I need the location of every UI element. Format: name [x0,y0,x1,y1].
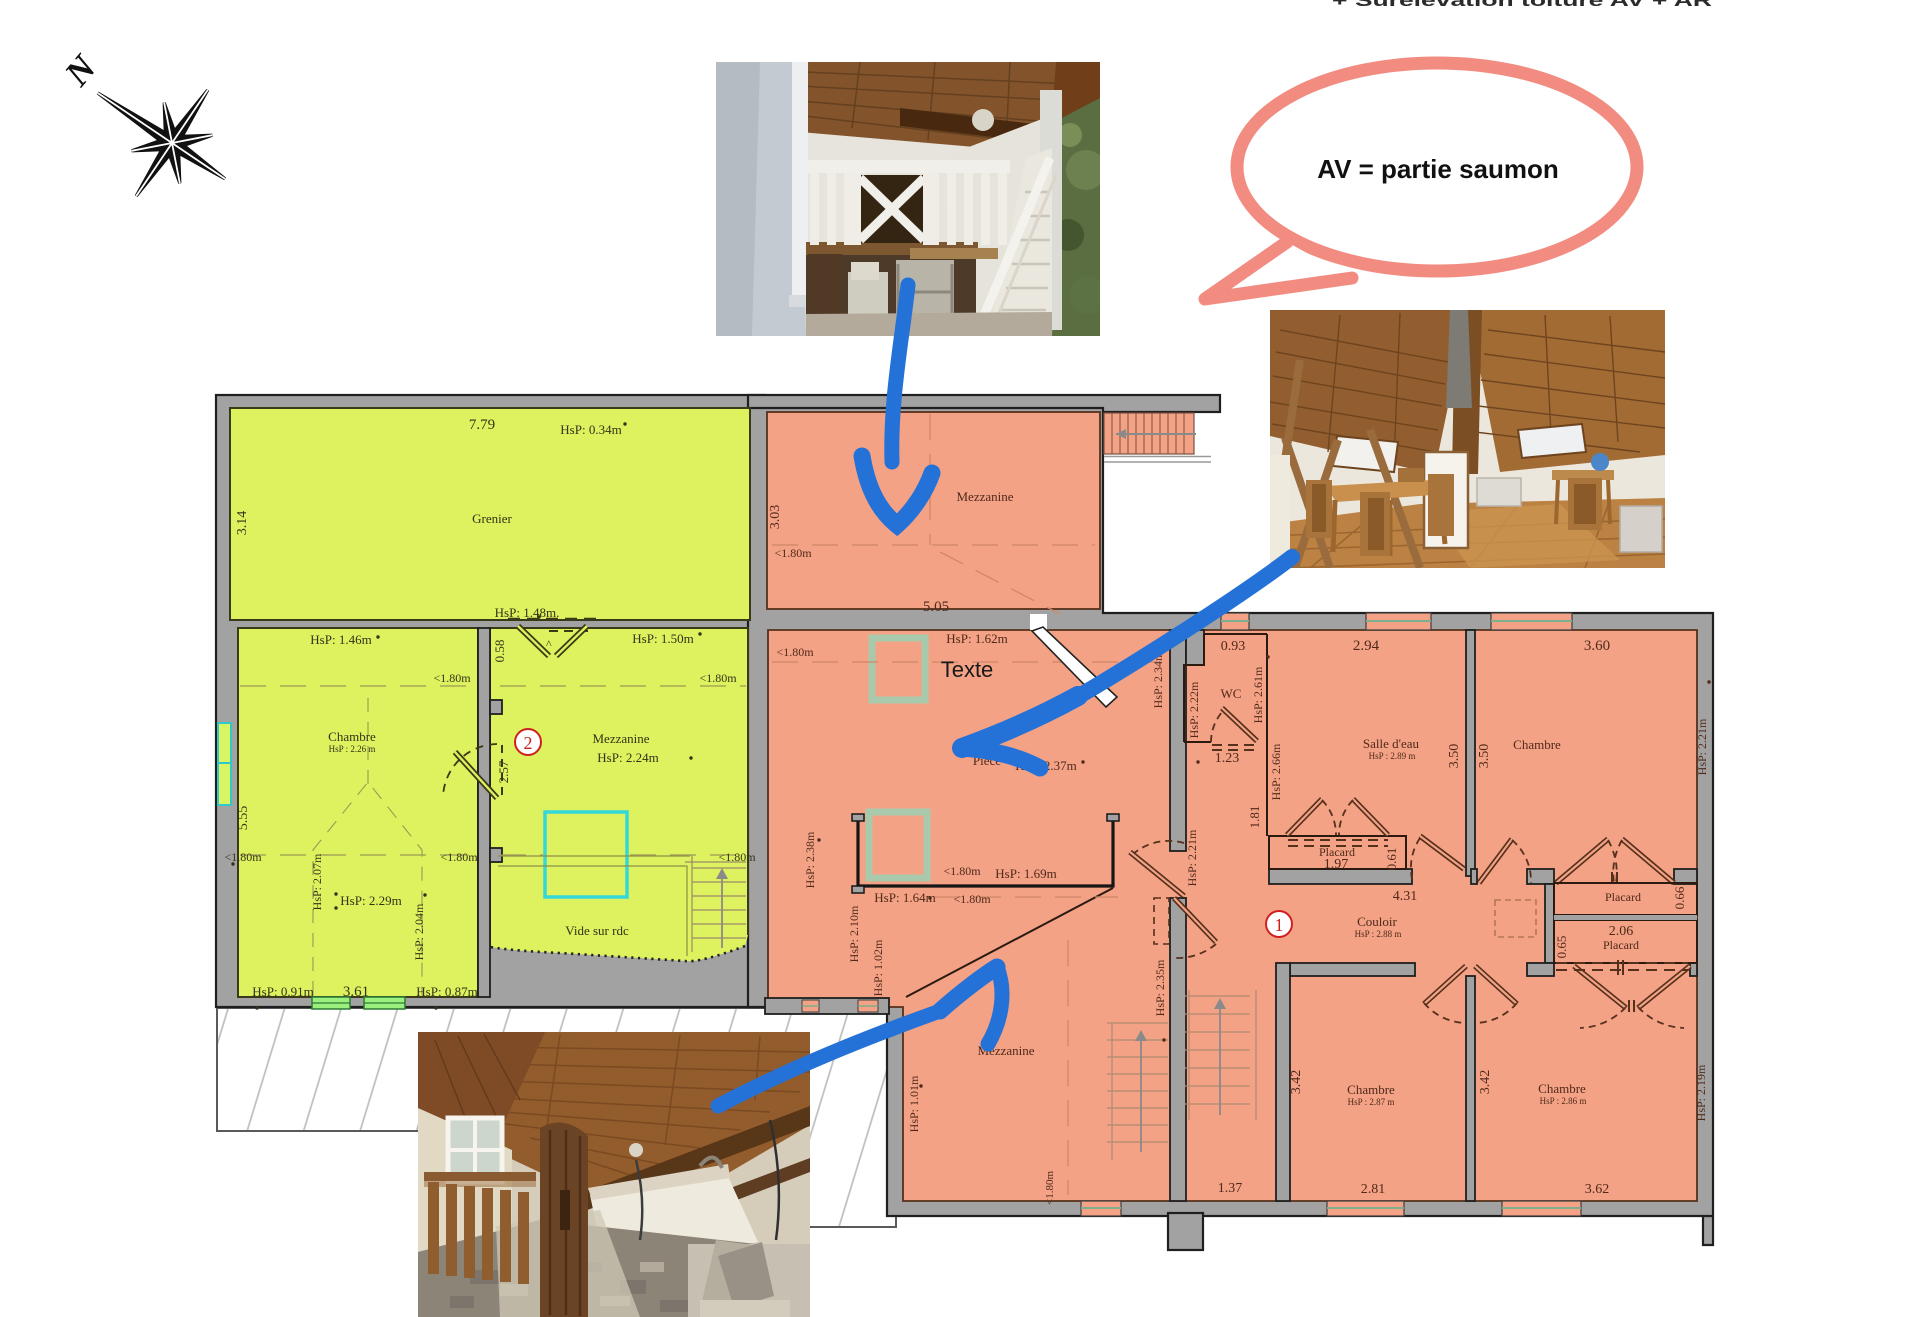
svg-text:3.50: 3.50 [1477,744,1492,769]
svg-text:0.61: 0.61 [1384,848,1399,871]
svg-text:<1.80m: <1.80m [943,864,981,878]
svg-text:7.79: 7.79 [469,417,495,433]
svg-text:<1.80m: <1.80m [776,645,814,659]
svg-text:1.23: 1.23 [1215,751,1240,766]
svg-text:N: N [56,47,105,94]
svg-text:HsP: 1.48m.: HsP: 1.48m. [495,605,560,620]
svg-text:2: 2 [524,733,533,753]
svg-text:2.94: 2.94 [1353,638,1380,654]
svg-text:<1.80m: <1.80m [718,850,756,864]
svg-text:HsP: 2.21m: HsP: 2.21m [1185,829,1199,886]
svg-text:Placard: Placard [1603,938,1639,952]
svg-text:HsP: 1.02m: HsP: 1.02m [871,939,885,996]
svg-text:<1.80m: <1.80m [953,892,991,906]
svg-text:HsP: 0.87m: HsP: 0.87m [416,984,477,999]
svg-text:<1.80m: <1.80m [699,671,737,685]
svg-text:HsP: 2.19m: HsP: 2.19m [1694,1064,1708,1121]
svg-text:HsP: 1.64m: HsP: 1.64m [874,890,935,905]
svg-text:4.31: 4.31 [1393,889,1418,904]
svg-text:HsP: 2.21m: HsP: 2.21m [1695,718,1709,775]
svg-text:Couloir: Couloir [1357,914,1397,929]
svg-text:Grenier: Grenier [472,511,512,526]
svg-text:3.03: 3.03 [768,505,783,530]
svg-text:HsP: 1.69m: HsP: 1.69m [995,866,1056,881]
svg-text:0.58: 0.58 [492,640,507,663]
svg-text:3.50: 3.50 [1447,744,1462,769]
svg-text:HsP : 2.26 m: HsP : 2.26 m [329,744,376,754]
svg-text:HsP: 2.24m: HsP: 2.24m [597,750,658,765]
svg-text:3.60: 3.60 [1584,638,1610,654]
svg-text:<1.80m: <1.80m [1044,1171,1056,1205]
svg-text:0.66: 0.66 [1672,886,1687,909]
svg-text:Salle d'eau: Salle d'eau [1363,736,1420,751]
svg-text:Mezzanine: Mezzanine [592,731,649,746]
svg-text:5.55: 5.55 [236,806,251,831]
svg-text:HsP : 2.89 m: HsP : 2.89 m [1369,751,1416,761]
svg-text:HsP: 1.50m: HsP: 1.50m [632,631,693,646]
svg-text:HsP : 2.86 m: HsP : 2.86 m [1540,1096,1587,1106]
svg-text:Texte: Texte [941,657,994,682]
svg-text:Chambre: Chambre [1513,737,1561,752]
svg-text:3.42: 3.42 [1478,1070,1493,1095]
svg-text:HsP: 2.07m: HsP: 2.07m [310,853,324,910]
svg-text:WC: WC [1221,686,1242,701]
svg-text:<1.80m: <1.80m [224,850,262,864]
svg-text:Vide sur rdc: Vide sur rdc [565,923,629,938]
svg-text:5.05: 5.05 [923,599,949,615]
svg-text:0.93: 0.93 [1221,639,1246,654]
svg-text:HsP: 2.38m: HsP: 2.38m [803,831,817,888]
svg-text:<1.80m: <1.80m [774,546,812,560]
svg-text:HsP: 1.46m: HsP: 1.46m [310,632,371,647]
svg-text:HsP: 2.61m: HsP: 2.61m [1251,666,1265,723]
svg-text:3.61: 3.61 [343,984,369,1000]
svg-text:AV = partie saumon: AV = partie saumon [1317,154,1559,184]
svg-text:HsP: 0.34m: HsP: 0.34m [560,422,621,437]
svg-text:2.57: 2.57 [496,760,511,783]
svg-text:HsP: 1.62m: HsP: 1.62m [946,631,1007,646]
svg-text:2.81: 2.81 [1361,1182,1386,1197]
svg-text:^: ^ [546,637,552,651]
svg-text:HsP: 2.22m: HsP: 2.22m [1187,681,1201,738]
svg-text:HsP: 1.01m: HsP: 1.01m [907,1075,921,1132]
svg-text:HsP: 2.04m: HsP: 2.04m [412,903,426,960]
svg-text:3.62: 3.62 [1585,1182,1610,1197]
svg-text:3.14: 3.14 [235,511,250,536]
svg-text:0.65: 0.65 [1554,936,1569,959]
svg-text:HsP: 2.66m: HsP: 2.66m [1269,743,1283,800]
svg-text:1.37: 1.37 [1218,1181,1243,1196]
svg-text:HsP: 0.91m: HsP: 0.91m [252,984,313,999]
svg-text:1.81: 1.81 [1247,806,1262,829]
svg-text:HsP: 2.35m: HsP: 2.35m [1153,959,1167,1016]
svg-text:HsP : 2.88 m: HsP : 2.88 m [1355,929,1402,939]
svg-text:Placard: Placard [1605,890,1641,904]
svg-text:HsP : 2.87 m: HsP : 2.87 m [1348,1097,1395,1107]
svg-text:Chambre: Chambre [1347,1082,1395,1097]
svg-text:Mezzanine: Mezzanine [956,489,1013,504]
svg-text:Chambre: Chambre [328,729,376,744]
svg-text:2.06: 2.06 [1609,924,1634,939]
svg-text:3.42: 3.42 [1289,1070,1304,1095]
svg-text:<1.80m: <1.80m [433,671,471,685]
svg-text:+ Surelevation toiture AV + AR: + Surelevation toiture AV + AR [1332,0,1712,10]
svg-text:1: 1 [1275,915,1284,935]
svg-text:HsP: 2.10m: HsP: 2.10m [847,905,861,962]
svg-text:1.97: 1.97 [1324,857,1349,872]
svg-text:<1.80m: <1.80m [440,850,478,864]
svg-text:HsP: 2.29m: HsP: 2.29m [340,893,401,908]
svg-text:Chambre: Chambre [1538,1081,1586,1096]
